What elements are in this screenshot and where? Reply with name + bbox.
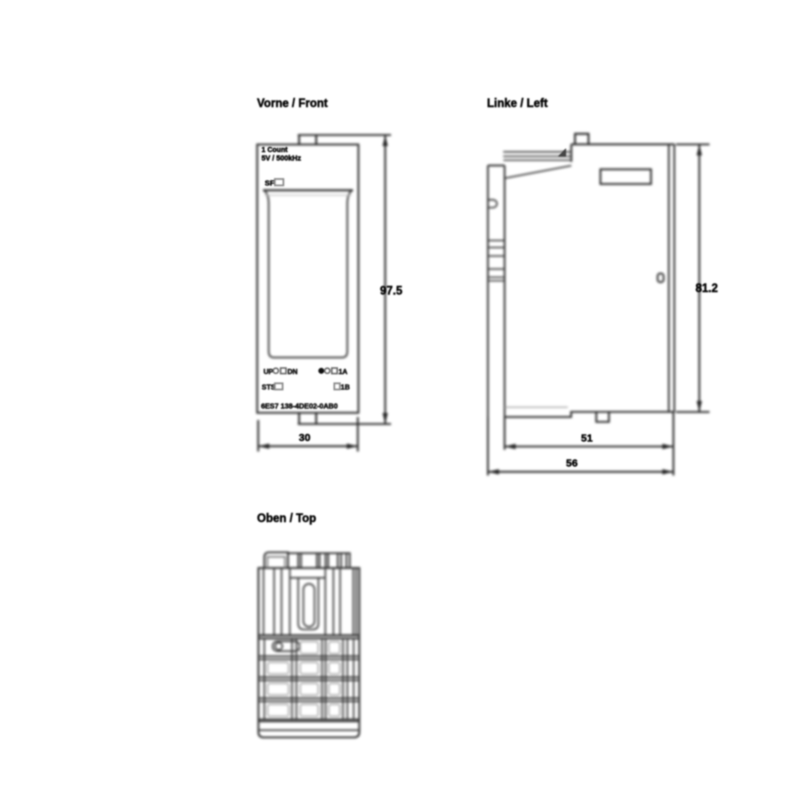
svg-text:81.2: 81.2 — [696, 283, 718, 295]
svg-text:DN: DN — [288, 369, 298, 376]
svg-text:6ES7 138-4DE02-0AB0: 6ES7 138-4DE02-0AB0 — [261, 402, 338, 411]
svg-text:56: 56 — [566, 458, 578, 470]
svg-text:1A: 1A — [339, 369, 348, 376]
svg-text:5V / 500kHz: 5V / 500kHz — [262, 154, 302, 163]
svg-text:Linke / Left: Linke / Left — [487, 98, 548, 110]
svg-text:97.5: 97.5 — [380, 286, 403, 298]
svg-text:SF: SF — [265, 179, 275, 188]
svg-text:STS: STS — [262, 385, 276, 392]
svg-text:UP: UP — [264, 369, 274, 376]
svg-text:51: 51 — [581, 432, 593, 444]
svg-text:1B: 1B — [341, 385, 350, 392]
svg-text:30: 30 — [299, 432, 311, 444]
svg-text:Vorne / Front: Vorne / Front — [257, 98, 328, 110]
svg-text:Oben / Top: Oben / Top — [257, 513, 316, 525]
